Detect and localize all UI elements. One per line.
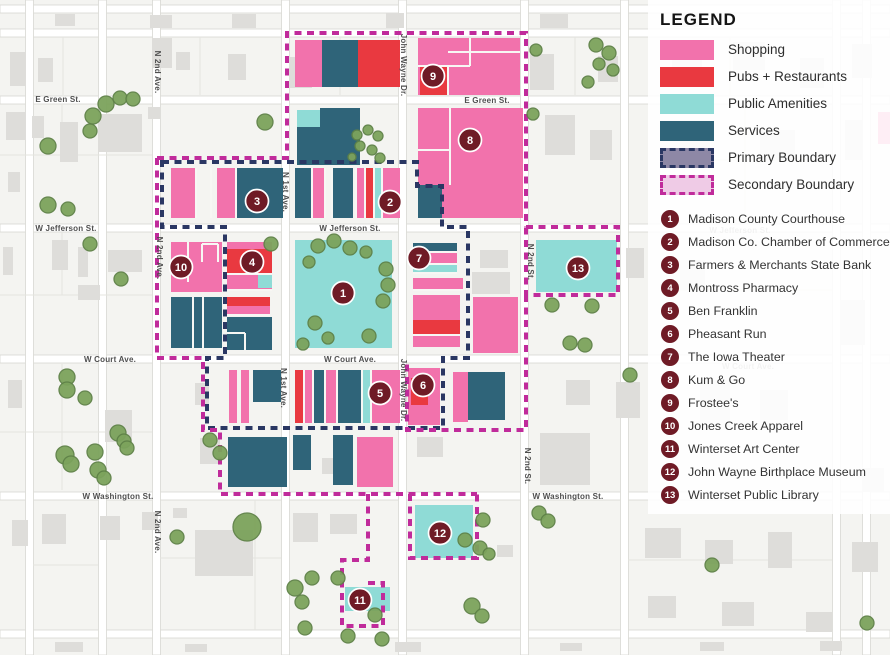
legend-panel: LEGEND Shopping Pubs + Restaurants Publi… — [648, 0, 890, 514]
legend-label: Public Amenities — [728, 96, 827, 111]
place-item-11: 11 Winterset Art Center — [660, 440, 886, 458]
place-number-badge: 1 — [660, 209, 680, 229]
place-item-13: 13 Winterset Public Library — [660, 486, 886, 504]
street-label-n-2nd-st-bottom: N 2nd St. — [523, 448, 532, 484]
svg-text:13: 13 — [572, 263, 584, 275]
public-amenities-swatch — [660, 94, 714, 114]
svg-text:4: 4 — [249, 257, 256, 269]
street-label-n-1st-ave-top: N 1st Ave. — [281, 172, 290, 212]
legend-item-shopping: Shopping — [660, 39, 886, 60]
place-item-5: 5 Ben Franklin — [660, 302, 886, 320]
place-name: Montross Pharmacy — [688, 281, 798, 295]
svg-text:1: 1 — [340, 288, 346, 300]
street-label-w-washington-right: W Washington St. — [533, 492, 604, 501]
primary-boundary-swatch — [660, 148, 714, 168]
map-marker-1: 1 — [332, 282, 355, 305]
legend-item-primary-boundary: Primary Boundary — [660, 147, 886, 168]
place-item-12: 12 John Wayne Birthplace Museum — [660, 463, 886, 481]
map-marker-9: 9 — [422, 65, 445, 88]
legend-label: Services — [728, 123, 780, 138]
svg-text:10: 10 — [175, 262, 187, 274]
legend-label: Shopping — [728, 42, 785, 57]
place-number-badge: 5 — [660, 301, 680, 321]
legend-label: Secondary Boundary — [728, 177, 854, 192]
place-name: John Wayne Birthplace Museum — [688, 465, 866, 479]
place-number-badge: 10 — [660, 416, 680, 436]
svg-text:6: 6 — [420, 380, 426, 392]
place-name: Jones Creek Apparel — [688, 419, 803, 433]
svg-text:8: 8 — [467, 135, 473, 147]
street-label-w-jefferson-center: W Jefferson St. — [319, 224, 380, 233]
place-name: Madison County Courthouse — [688, 212, 845, 226]
map-marker-4: 4 — [241, 251, 264, 274]
place-name: Ben Franklin — [688, 304, 758, 318]
map-marker-3: 3 — [246, 190, 269, 213]
place-number-badge: 4 — [660, 278, 680, 298]
place-item-3: 3 Farmers & Merchants State Bank — [660, 256, 886, 274]
svg-text:11: 11 — [354, 595, 366, 607]
street-label-john-wayne-bottom: John Wayne Dr. — [399, 359, 408, 422]
place-number-badge: 11 — [660, 439, 680, 459]
street-label-n-2nd-ave-bottom: N 2nd Ave. — [153, 511, 162, 554]
place-name: Winterset Public Library — [688, 488, 819, 502]
svg-text:7: 7 — [416, 253, 422, 265]
map-marker-11: 11 — [349, 589, 372, 612]
place-item-6: 6 Pheasant Run — [660, 325, 886, 343]
pubs-restaurants-swatch — [660, 67, 714, 87]
street-label-n-2nd-ave-mid: N 2nd Ave. — [155, 237, 164, 280]
secondary-boundary-swatch — [660, 175, 714, 195]
place-number-badge: 13 — [660, 485, 680, 505]
svg-text:5: 5 — [377, 388, 383, 400]
map-marker-7: 7 — [408, 247, 431, 270]
places-list: 1 Madison County Courthouse 2 Madison Co… — [660, 210, 886, 504]
street-label-n-1st-ave-bottom: N 1st Ave. — [279, 368, 288, 408]
legend-item-secondary-boundary: Secondary Boundary — [660, 174, 886, 195]
winterset-district-map: E Green St. E Green St. W Jefferson St. … — [0, 0, 890, 655]
street-label-e-green-right: E Green St. — [464, 96, 509, 105]
street-label-w-jefferson-left: W Jefferson St. — [35, 224, 96, 233]
place-name: Winterset Art Center — [688, 442, 800, 456]
map-marker-12: 12 — [429, 522, 452, 545]
legend-item-public-amenities: Public Amenities — [660, 93, 886, 114]
map-marker-5: 5 — [369, 382, 392, 405]
place-item-2: 2 Madison Co. Chamber of Commerce — [660, 233, 886, 251]
legend-item-services: Services — [660, 120, 886, 141]
place-item-9: 9 Frostee's — [660, 394, 886, 412]
street-label-w-court-center: W Court Ave. — [324, 355, 376, 364]
place-number-badge: 2 — [660, 232, 680, 252]
map-marker-13: 13 — [567, 257, 590, 280]
map-marker-10: 10 — [170, 256, 193, 279]
shopping-swatch — [660, 40, 714, 60]
place-item-1: 1 Madison County Courthouse — [660, 210, 886, 228]
street-label-john-wayne-top: John Wayne Dr. — [399, 34, 408, 97]
place-number-badge: 3 — [660, 255, 680, 275]
svg-text:9: 9 — [430, 71, 436, 83]
place-number-badge: 9 — [660, 393, 680, 413]
street-label-e-green-left: E Green St. — [35, 95, 80, 104]
street-label-n-2nd-ave-top: N 2nd Ave. — [153, 51, 162, 94]
place-name: Pheasant Run — [688, 327, 767, 341]
place-item-8: 8 Kum & Go — [660, 371, 886, 389]
legend-label: Primary Boundary — [728, 150, 836, 165]
street-label-w-court-left: W Court Ave. — [84, 355, 136, 364]
legend-label: Pubs + Restaurants — [728, 69, 847, 84]
map-marker-8: 8 — [459, 129, 482, 152]
legend-title: LEGEND — [660, 10, 886, 30]
map-marker-6: 6 — [412, 374, 435, 397]
place-name: Kum & Go — [688, 373, 745, 387]
place-number-badge: 8 — [660, 370, 680, 390]
services-swatch — [660, 121, 714, 141]
map-marker-2: 2 — [379, 191, 402, 214]
place-name: Farmers & Merchants State Bank — [688, 258, 871, 272]
place-number-badge: 6 — [660, 324, 680, 344]
place-number-badge: 12 — [660, 462, 680, 482]
place-item-4: 4 Montross Pharmacy — [660, 279, 886, 297]
street-label-w-washington-left: W Washington St. — [83, 492, 154, 501]
place-number-badge: 7 — [660, 347, 680, 367]
svg-text:3: 3 — [254, 196, 260, 208]
svg-text:2: 2 — [387, 197, 393, 209]
place-item-7: 7 The Iowa Theater — [660, 348, 886, 366]
place-name: Frostee's — [688, 396, 739, 410]
place-name: The Iowa Theater — [688, 350, 785, 364]
legend-item-pubs-restaurants: Pubs + Restaurants — [660, 66, 886, 87]
place-name: Madison Co. Chamber of Commerce — [688, 235, 890, 249]
svg-text:12: 12 — [434, 528, 446, 540]
place-item-10: 10 Jones Creek Apparel — [660, 417, 886, 435]
street-label-n-2nd-st-top: N 2nd St. — [526, 244, 535, 280]
